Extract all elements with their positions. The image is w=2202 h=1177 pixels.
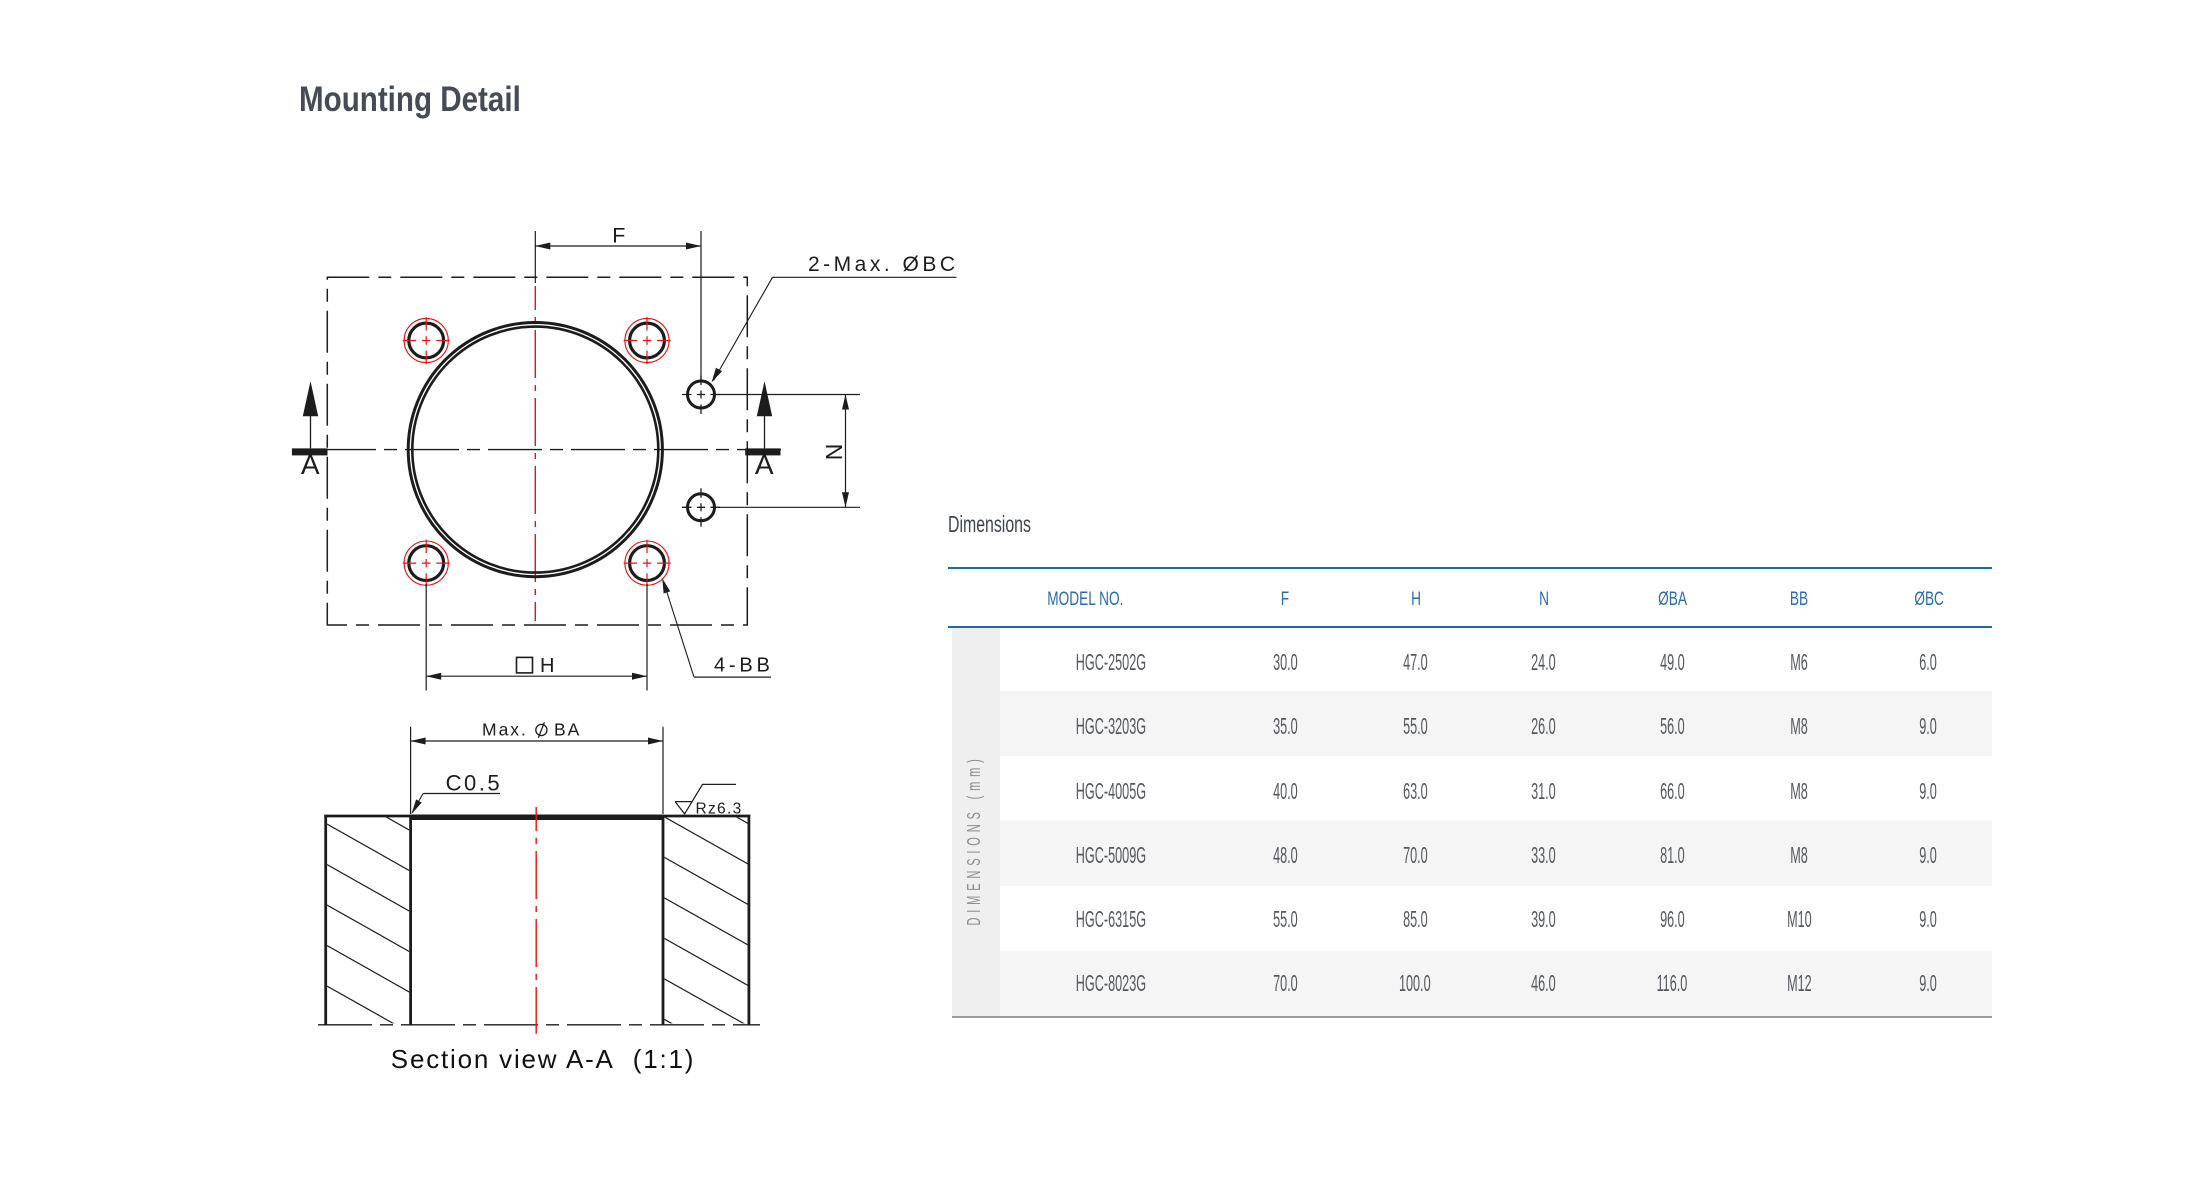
- svg-text:Rz6.3: Rz6.3: [696, 800, 743, 817]
- svg-text:A: A: [755, 449, 774, 480]
- svg-text:BA: BA: [554, 720, 581, 740]
- svg-text:Section view A-A (1:1): Section view A-A (1:1): [391, 1044, 695, 1074]
- svg-text:F: F: [612, 224, 625, 248]
- svg-text:C0.5: C0.5: [446, 771, 502, 796]
- svg-text:H: H: [540, 655, 554, 677]
- svg-text:4-BB: 4-BB: [714, 655, 774, 677]
- svg-text:2-Max. ØBC: 2-Max. ØBC: [808, 253, 959, 276]
- svg-text:N: N: [821, 444, 847, 461]
- svg-text:Max.: Max.: [482, 720, 528, 740]
- svg-text:A: A: [301, 449, 320, 480]
